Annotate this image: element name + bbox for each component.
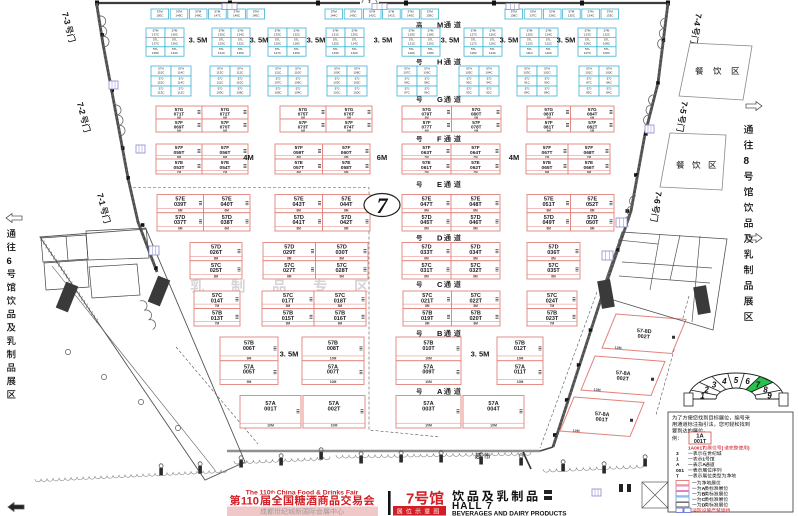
svg-text:G: G <box>437 95 443 104</box>
svg-text:135C: 135C <box>568 14 576 18</box>
svg-text:134C: 134C <box>237 32 245 36</box>
svg-text:7M: 7M <box>215 304 220 308</box>
svg-text:027T: 027T <box>283 268 296 274</box>
svg-text:034T: 034T <box>469 250 482 256</box>
svg-text:3. 5M: 3. 5M <box>557 36 576 45</box>
svg-text:125C: 125C <box>526 32 534 36</box>
svg-text:139C: 139C <box>426 14 434 18</box>
svg-text:D: D <box>702 503 706 509</box>
svg-text:112C: 112C <box>178 91 186 95</box>
svg-text:8M: 8M <box>590 208 595 212</box>
svg-text:104C: 104C <box>294 91 302 95</box>
svg-text:8M: 8M <box>545 170 550 174</box>
svg-text:4M: 4M <box>243 153 253 162</box>
svg-text:103C: 103C <box>333 81 341 85</box>
svg-text:136C: 136C <box>549 14 557 18</box>
svg-text:029T: 029T <box>283 250 296 256</box>
svg-text:115C: 115C <box>158 81 166 85</box>
svg-text:149C: 149C <box>175 14 183 18</box>
svg-text:8M: 8M <box>214 275 219 279</box>
svg-text:10M: 10M <box>425 356 432 360</box>
svg-text:3. 5M: 3. 5M <box>280 350 299 359</box>
svg-text:BEVERAGES AND DAIRY PRODUCTS: BEVERAGES AND DAIRY PRODUCTS <box>452 511 567 516</box>
svg-text:8M: 8M <box>344 155 349 159</box>
svg-text:6M: 6M <box>425 128 430 132</box>
svg-text:127C: 127C <box>470 32 478 36</box>
svg-text:131C: 131C <box>218 51 226 55</box>
svg-text:E: E <box>437 180 442 189</box>
svg-text:125C: 125C <box>332 42 340 46</box>
svg-text:89C: 89C <box>524 91 530 95</box>
svg-text:028T: 028T <box>335 268 348 274</box>
svg-text:7M: 7M <box>215 322 220 326</box>
svg-text:001T: 001T <box>595 417 608 424</box>
svg-text:126C: 126C <box>489 32 497 36</box>
svg-text:142C: 142C <box>369 14 377 18</box>
svg-text:8M: 8M <box>547 208 552 212</box>
svg-text:C: C <box>437 280 443 289</box>
svg-text:8M: 8M <box>338 322 343 326</box>
svg-text:128C: 128C <box>293 42 301 46</box>
svg-text:045T: 045T <box>420 220 433 226</box>
svg-text:108C: 108C <box>353 71 361 75</box>
svg-text:7M: 7M <box>177 170 182 174</box>
svg-text:10M: 10M <box>517 380 524 384</box>
svg-text:8M: 8M <box>287 256 292 260</box>
svg-text:10M: 10M <box>490 423 497 427</box>
svg-text:137C: 137C <box>152 32 160 36</box>
svg-text:121C: 121C <box>408 42 416 46</box>
svg-text:101C: 101C <box>585 71 593 75</box>
svg-text:044T: 044T <box>340 202 353 208</box>
svg-text:6M: 6M <box>474 128 479 132</box>
svg-text:123C: 123C <box>584 32 592 36</box>
svg-text:12M: 12M <box>593 388 600 393</box>
svg-text:8M: 8M <box>340 256 345 260</box>
svg-text:8M: 8M <box>344 227 349 231</box>
svg-text:1: 1 <box>702 457 705 463</box>
svg-text:006T: 006T <box>243 346 256 352</box>
svg-text:9M: 9M <box>247 356 252 360</box>
svg-text:8M: 8M <box>424 256 429 260</box>
svg-text:3. 5M: 3. 5M <box>250 36 269 45</box>
svg-text:3. 5M: 3. 5M <box>374 36 393 45</box>
svg-text:3. 5M: 3. 5M <box>471 350 490 359</box>
svg-text:8M: 8M <box>297 155 302 159</box>
svg-text:95C: 95C <box>466 81 472 85</box>
svg-text:112C: 112C <box>237 71 245 75</box>
svg-text:92C: 92C <box>486 91 492 95</box>
svg-text:8M: 8M <box>297 170 302 174</box>
svg-text:129C: 129C <box>408 32 416 36</box>
svg-text:136C: 136C <box>171 42 179 46</box>
svg-text:12M: 12M <box>572 429 579 434</box>
svg-text:102C: 102C <box>543 71 551 75</box>
svg-text:3: 3 <box>676 451 679 457</box>
svg-text:114C: 114C <box>489 51 497 55</box>
svg-text:100C: 100C <box>605 71 613 75</box>
svg-text:10M: 10M <box>267 423 274 427</box>
svg-text:143C: 143C <box>349 14 357 18</box>
svg-text:038T: 038T <box>220 220 233 226</box>
svg-text:109C: 109C <box>333 71 341 75</box>
svg-text:133C: 133C <box>218 42 226 46</box>
svg-text:A: A <box>676 462 680 468</box>
svg-text:7M: 7M <box>223 170 228 174</box>
svg-text:105C: 105C <box>465 71 473 75</box>
svg-text:003T: 003T <box>422 406 435 412</box>
svg-text:002T: 002T <box>616 376 629 383</box>
svg-text:A: A <box>702 462 706 468</box>
svg-text:10M: 10M <box>331 423 338 427</box>
svg-text:96C: 96C <box>424 91 430 95</box>
svg-text:7: 7 <box>377 193 389 218</box>
svg-text:004T: 004T <box>487 406 500 412</box>
svg-text:8M: 8M <box>425 304 430 308</box>
svg-text:7: 7 <box>756 380 761 389</box>
svg-text:87C: 87C <box>586 81 592 85</box>
svg-text:10M: 10M <box>425 380 432 384</box>
svg-text:001: 001 <box>676 468 684 474</box>
svg-text:128C: 128C <box>427 32 435 36</box>
svg-text:122C: 122C <box>351 51 359 55</box>
svg-text:7: 7 <box>406 491 414 508</box>
svg-text:107C: 107C <box>403 71 411 75</box>
svg-text:148C: 148C <box>195 14 203 18</box>
svg-text:133C: 133C <box>274 32 282 36</box>
svg-text:147C: 147C <box>214 14 222 18</box>
svg-text:141C: 141C <box>388 14 396 18</box>
svg-text:8M: 8M <box>474 304 479 308</box>
svg-text:5: 5 <box>734 376 739 385</box>
svg-text:046T: 046T <box>469 220 482 226</box>
svg-text:86C: 86C <box>606 81 612 85</box>
svg-text:8M: 8M <box>297 227 302 231</box>
svg-text:8M: 8M <box>424 227 429 231</box>
svg-text:124C: 124C <box>351 42 359 46</box>
svg-text:6M: 6M <box>223 128 228 132</box>
svg-text:8M: 8M <box>473 208 478 212</box>
svg-text:8M: 8M <box>344 208 349 212</box>
svg-text:F: F <box>437 135 442 144</box>
svg-text:146C: 146C <box>233 14 241 18</box>
svg-text:002T: 002T <box>637 334 650 341</box>
svg-text:112C: 112C <box>545 42 553 46</box>
svg-text:113C: 113C <box>526 42 534 46</box>
svg-text:7M: 7M <box>587 155 592 159</box>
svg-text:036T: 036T <box>547 250 560 256</box>
svg-text:008T: 008T <box>327 346 340 352</box>
svg-text:8M: 8M <box>177 155 182 159</box>
svg-text:109C: 109C <box>216 91 224 95</box>
svg-text:130C: 130C <box>351 32 359 36</box>
svg-text:136C: 136C <box>171 32 179 36</box>
svg-text:134C: 134C <box>171 51 179 55</box>
svg-text:6M: 6M <box>547 128 552 132</box>
svg-text:4: 4 <box>721 377 727 386</box>
svg-text:005T: 005T <box>243 370 256 376</box>
svg-text:6M: 6M <box>590 128 595 132</box>
svg-text:041T: 041T <box>292 220 305 226</box>
svg-text:150C: 150C <box>156 14 164 18</box>
svg-text:106C: 106C <box>423 71 431 75</box>
svg-text:132C: 132C <box>293 32 301 36</box>
svg-text:8M: 8M <box>473 256 478 260</box>
svg-text:9: 9 <box>767 391 772 400</box>
svg-text:101C: 101C <box>333 91 341 95</box>
svg-text:10M: 10M <box>330 356 337 360</box>
svg-text:A: A <box>702 486 706 492</box>
svg-text:035T: 035T <box>547 268 560 274</box>
svg-text:6M: 6M <box>225 208 230 212</box>
svg-text:8M: 8M <box>286 322 291 326</box>
svg-text:115C: 115C <box>158 71 166 75</box>
svg-text:131C: 131C <box>332 32 340 36</box>
svg-text:8M: 8M <box>344 170 349 174</box>
svg-text:123C: 123C <box>332 51 340 55</box>
svg-text:8M: 8M <box>338 304 343 308</box>
svg-text:001T: 001T <box>694 439 707 445</box>
svg-text:C: C <box>702 497 706 503</box>
svg-text:M: M <box>437 21 443 30</box>
svg-text:D: D <box>437 234 443 243</box>
svg-text:116C: 116C <box>489 42 497 46</box>
svg-text:031T: 031T <box>420 268 433 274</box>
svg-text:H: H <box>437 58 442 67</box>
svg-text:6M: 6M <box>225 227 230 231</box>
svg-text:8M: 8M <box>587 170 592 174</box>
svg-text:122C: 122C <box>603 32 611 36</box>
svg-text:120C: 120C <box>427 42 435 46</box>
svg-text:8M: 8M <box>551 275 556 279</box>
svg-text:039T: 039T <box>174 202 187 208</box>
svg-text:119C: 119C <box>408 51 416 55</box>
svg-text:6: 6 <box>7 256 12 267</box>
svg-text:048T: 048T <box>469 202 482 208</box>
svg-text:1A001T: 1A001T <box>688 446 705 452</box>
svg-text:135C: 135C <box>218 32 226 36</box>
svg-text:8M: 8M <box>590 227 595 231</box>
svg-text:3. 5M: 3. 5M <box>441 36 460 45</box>
svg-text:050T: 050T <box>586 220 599 226</box>
svg-text:8M: 8M <box>223 155 228 159</box>
svg-text:110C: 110C <box>545 51 553 55</box>
svg-text:6M: 6M <box>177 128 182 132</box>
svg-text:137C: 137C <box>152 42 160 46</box>
svg-text:037T: 037T <box>174 220 187 226</box>
svg-text:3. 5M: 3. 5M <box>307 36 326 45</box>
svg-text:2: 2 <box>703 385 709 394</box>
svg-text:102C: 102C <box>353 81 361 85</box>
svg-text:126C: 126C <box>293 51 301 55</box>
svg-text:A: A <box>437 387 443 396</box>
svg-text:103C: 103C <box>523 71 531 75</box>
svg-text:105C: 105C <box>274 91 282 95</box>
svg-text:8M: 8M <box>297 208 302 212</box>
svg-text:10M: 10M <box>330 380 337 384</box>
svg-text:6M: 6M <box>377 153 387 162</box>
svg-text:030T: 030T <box>335 250 348 256</box>
svg-text:124C: 124C <box>545 32 553 36</box>
svg-text:140C: 140C <box>407 14 415 18</box>
svg-text:98C: 98C <box>424 81 430 85</box>
svg-text:115C: 115C <box>470 51 478 55</box>
svg-text:8M: 8M <box>286 304 291 308</box>
svg-text:040T: 040T <box>220 202 233 208</box>
svg-text:85C: 85C <box>586 91 592 95</box>
svg-text:7M: 7M <box>424 170 429 174</box>
svg-text:108C: 108C <box>236 91 244 95</box>
svg-text:9M: 9M <box>247 380 252 384</box>
svg-text:002T: 002T <box>328 406 341 412</box>
svg-text:6M: 6M <box>178 227 183 231</box>
svg-text:051T: 051T <box>542 202 555 208</box>
svg-text:127C: 127C <box>274 51 282 55</box>
svg-text:10M: 10M <box>517 356 524 360</box>
svg-text:110: 110 <box>241 496 259 508</box>
svg-text:8M: 8M <box>474 322 479 326</box>
svg-text:93C: 93C <box>466 91 472 95</box>
svg-text:138C: 138C <box>510 14 518 18</box>
svg-text:007T: 007T <box>327 370 340 376</box>
svg-text:118C: 118C <box>427 51 435 55</box>
svg-text:99C: 99C <box>404 81 410 85</box>
svg-text:114C: 114C <box>178 81 186 85</box>
svg-text:107C: 107C <box>584 51 592 55</box>
svg-text:114C: 114C <box>178 71 186 75</box>
svg-text:110C: 110C <box>237 81 245 85</box>
svg-text:7M: 7M <box>473 170 478 174</box>
svg-text:90C: 90C <box>544 81 550 85</box>
svg-text:145C: 145C <box>252 14 260 18</box>
svg-text:8M: 8M <box>551 256 556 260</box>
svg-text:6M: 6M <box>301 128 306 132</box>
svg-text:111C: 111C <box>275 71 283 75</box>
svg-text:042T: 042T <box>340 220 353 226</box>
svg-text:8: 8 <box>744 156 750 167</box>
svg-text:8M: 8M <box>425 322 430 326</box>
svg-text:8M: 8M <box>473 227 478 231</box>
svg-text:133C: 133C <box>606 14 614 18</box>
svg-text:129C: 129C <box>274 42 282 46</box>
svg-text:12M: 12M <box>614 346 621 351</box>
svg-text:B: B <box>702 492 706 498</box>
svg-text:113C: 113C <box>158 91 166 95</box>
svg-text:6M: 6M <box>178 208 183 212</box>
svg-text:100C: 100C <box>353 91 361 95</box>
svg-text:032T: 032T <box>469 268 482 274</box>
svg-text:7M: 7M <box>473 155 478 159</box>
svg-text:3. 5M: 3. 5M <box>500 36 519 45</box>
svg-text:049T: 049T <box>542 220 555 226</box>
svg-text:8M: 8M <box>340 275 345 279</box>
svg-text:026T: 026T <box>210 250 223 256</box>
svg-text:10M: 10M <box>425 423 432 427</box>
svg-text:033T: 033T <box>420 250 433 256</box>
svg-text:111C: 111C <box>217 81 225 85</box>
svg-text:7M: 7M <box>545 155 550 159</box>
svg-text:T: T <box>676 473 679 479</box>
svg-text:132C: 132C <box>237 42 245 46</box>
svg-text:4M: 4M <box>509 153 519 162</box>
svg-text:137C: 137C <box>529 14 537 18</box>
svg-text:011T: 011T <box>514 370 527 376</box>
svg-text:109C: 109C <box>584 42 592 46</box>
svg-text:052T: 052T <box>586 202 599 208</box>
svg-text:94C: 94C <box>486 81 492 85</box>
svg-text:3. 5M: 3. 5M <box>189 36 208 45</box>
svg-text:8M: 8M <box>473 275 478 279</box>
svg-text:8M: 8M <box>424 208 429 212</box>
svg-text:134C: 134C <box>587 14 595 18</box>
svg-text:144C: 144C <box>330 14 338 18</box>
svg-text:107C: 107C <box>274 81 282 85</box>
svg-text:6: 6 <box>745 377 750 386</box>
svg-text:8M: 8M <box>214 256 219 260</box>
svg-text:108C: 108C <box>603 42 611 46</box>
svg-text:6M: 6M <box>347 128 352 132</box>
svg-text:84C: 84C <box>606 91 612 95</box>
svg-text:047T: 047T <box>420 202 433 208</box>
svg-text:117C: 117C <box>470 42 478 46</box>
svg-text:010T: 010T <box>422 346 435 352</box>
svg-text:106C: 106C <box>603 51 611 55</box>
svg-text:7M: 7M <box>424 155 429 159</box>
svg-text:8M: 8M <box>287 275 292 279</box>
svg-text:130C: 130C <box>237 51 245 55</box>
svg-text:025T: 025T <box>210 268 223 274</box>
svg-text:7M: 7M <box>550 322 555 326</box>
svg-text:009T: 009T <box>422 370 435 376</box>
svg-text:135C: 135C <box>152 51 160 55</box>
svg-text:113C: 113C <box>217 71 225 75</box>
svg-text:91C: 91C <box>524 81 530 85</box>
svg-text:111C: 111C <box>526 51 534 55</box>
svg-text:106C: 106C <box>294 81 302 85</box>
svg-text:001T: 001T <box>264 406 277 412</box>
svg-text:1: 1 <box>676 457 679 463</box>
svg-text:88C: 88C <box>544 91 550 95</box>
svg-text:8M: 8M <box>547 227 552 231</box>
svg-text:7M: 7M <box>550 304 555 308</box>
svg-text:110C: 110C <box>295 71 303 75</box>
svg-text:97C: 97C <box>404 91 410 95</box>
svg-text:8M: 8M <box>424 275 429 279</box>
svg-text:104C: 104C <box>485 71 493 75</box>
svg-text:3: 3 <box>712 380 717 389</box>
svg-text:012T: 012T <box>514 346 527 352</box>
svg-text:043T: 043T <box>292 202 305 208</box>
